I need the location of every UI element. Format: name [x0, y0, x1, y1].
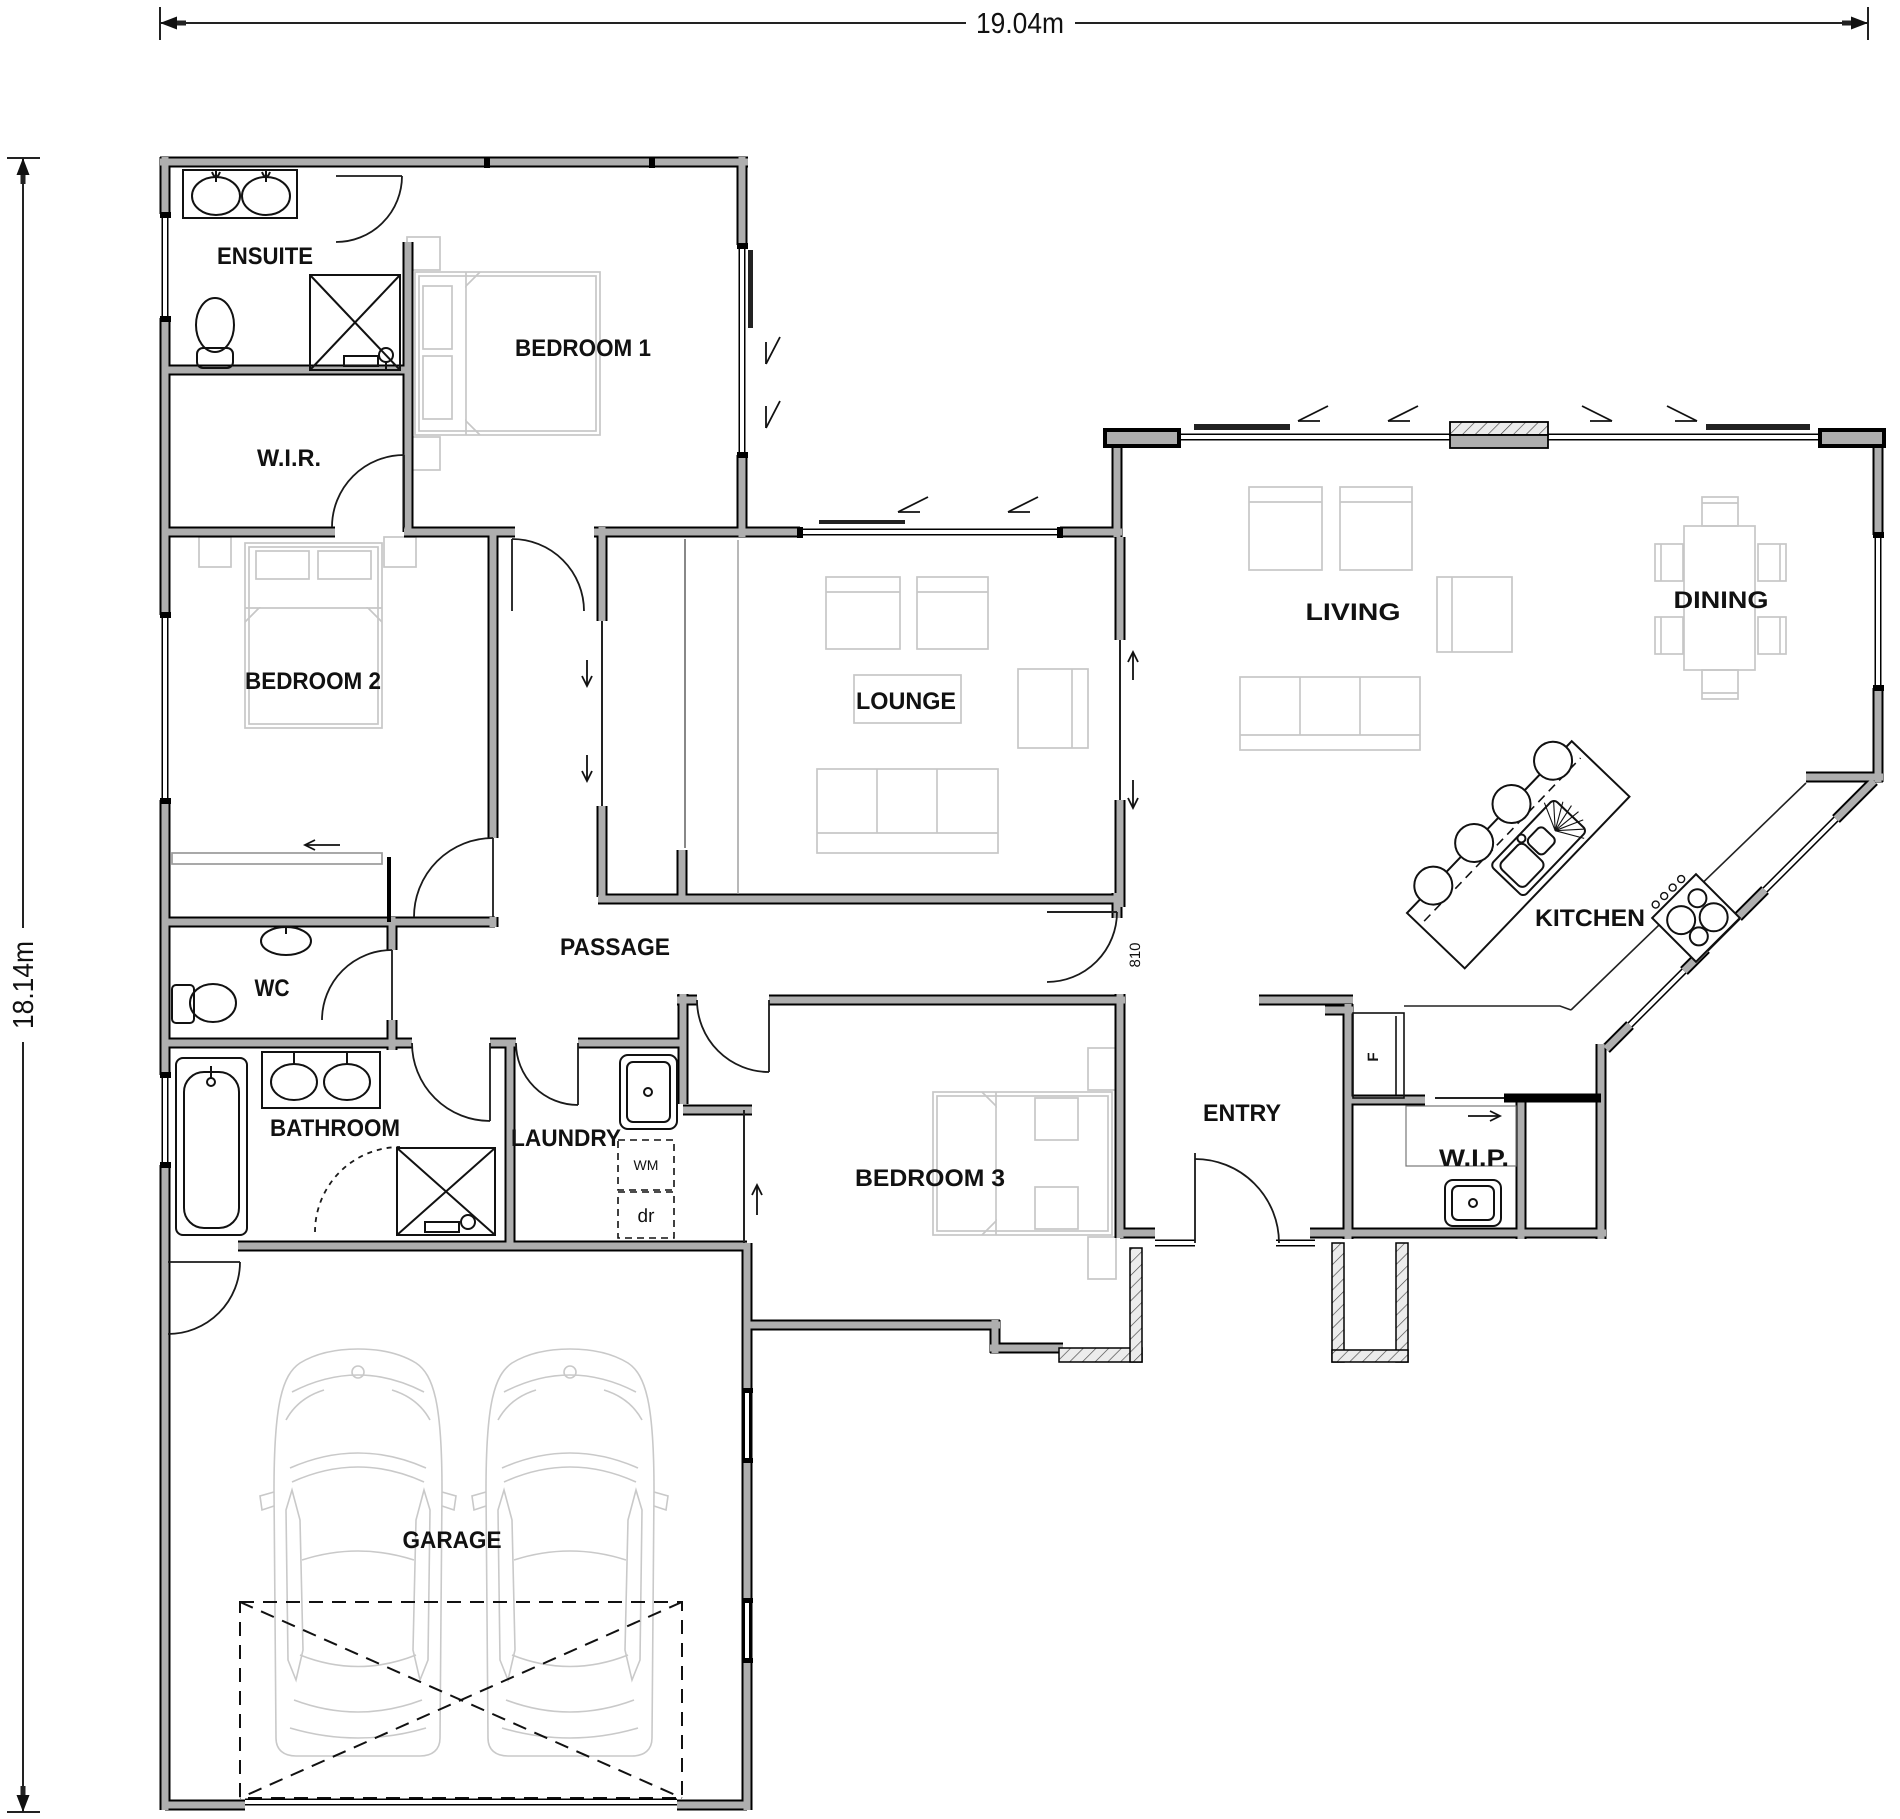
- svg-text:GARAGE: GARAGE: [403, 1527, 502, 1554]
- svg-text:F: F: [1365, 1052, 1382, 1061]
- svg-text:18.14m: 18.14m: [8, 941, 40, 1029]
- svg-text:dr: dr: [638, 1206, 656, 1227]
- svg-text:W.I.P.: W.I.P.: [1439, 1145, 1509, 1172]
- svg-text:LOUNGE: LOUNGE: [856, 688, 956, 715]
- svg-text:KITCHEN: KITCHEN: [1535, 905, 1645, 932]
- svg-text:BEDROOM 1: BEDROOM 1: [515, 335, 651, 362]
- svg-text:LAUNDRY: LAUNDRY: [511, 1125, 621, 1152]
- svg-text:ENSUITE: ENSUITE: [217, 243, 313, 270]
- svg-text:DINING: DINING: [1674, 587, 1769, 614]
- svg-text:810: 810: [1127, 942, 1144, 967]
- svg-text:LIVING: LIVING: [1306, 599, 1401, 626]
- svg-text:19.04m: 19.04m: [976, 8, 1064, 40]
- svg-text:BEDROOM 2: BEDROOM 2: [245, 668, 381, 695]
- svg-text:ENTRY: ENTRY: [1203, 1100, 1281, 1127]
- svg-text:WC: WC: [255, 975, 290, 1002]
- svg-text:W.I.R.: W.I.R.: [257, 445, 321, 472]
- svg-text:BEDROOM 3: BEDROOM 3: [855, 1165, 1005, 1192]
- svg-text:WM: WM: [634, 1157, 659, 1173]
- svg-text:PASSAGE: PASSAGE: [560, 934, 670, 961]
- svg-text:BATHROOM: BATHROOM: [270, 1115, 400, 1142]
